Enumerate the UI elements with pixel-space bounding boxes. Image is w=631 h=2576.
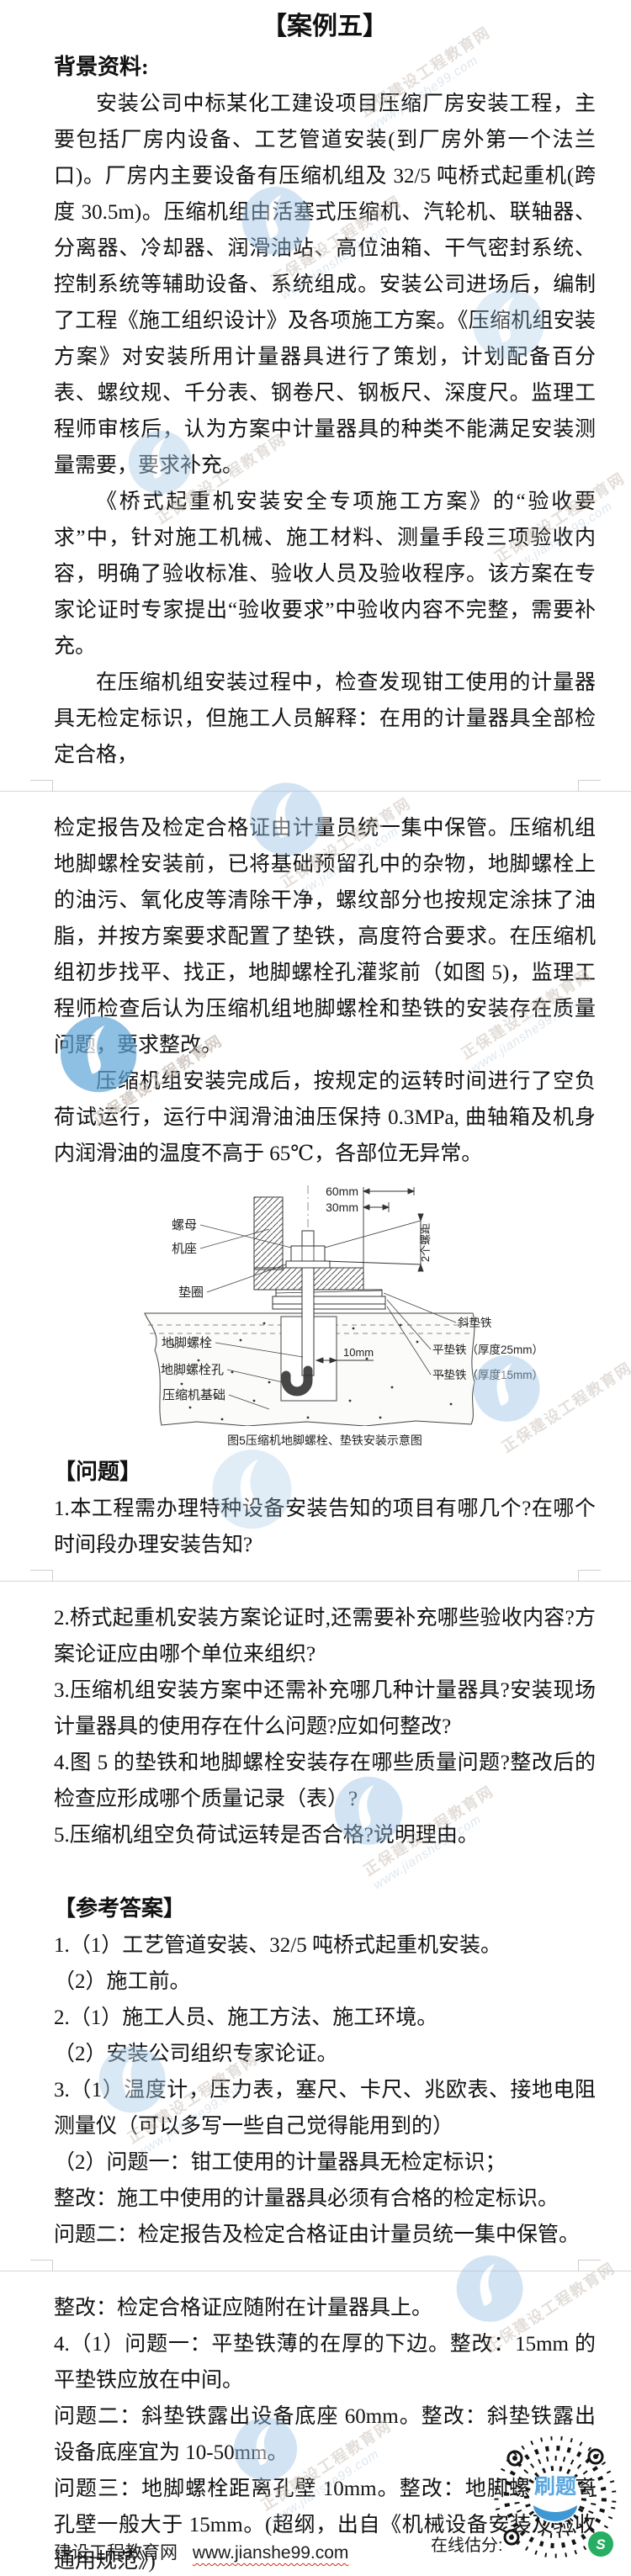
figure-caption: 图5压缩机地脚螺栓、垫铁安装示意图: [54, 1432, 596, 1449]
page-content: 【案例五】 背景资料: 安装公司中标某化工建设项目压缩厂房安装工程，主要包括厂房…: [0, 5, 631, 2576]
label-nut: 螺母: [171, 1218, 196, 1232]
label-base: 机座: [171, 1242, 196, 1256]
footer: 建设工程教育网 www.jianshe99.com: [54, 2539, 348, 2564]
answer-line: 整改：检定合格证应随附在计量器具上。: [54, 2290, 596, 2326]
qr-code-graphic: 刷题 S: [491, 2436, 626, 2571]
background-paragraph-3a: 在压缩机组安装过程中，检查发现钳工使用的计量器具无检定标识，但施工人员解释：在用…: [54, 665, 596, 773]
footer-site-url: www.jianshe99.com: [193, 2543, 349, 2563]
page-corner-right: [578, 780, 601, 792]
dim-10mm-label: 10mm: [343, 1346, 374, 1359]
answer-line: 2.（1）施工人员、施工方法、施工环境。: [54, 2000, 596, 2036]
background-paragraph-1: 安装公司中标某化工建设项目压缩厂房安装工程，主要包括厂房内设备、工艺管道安装(到…: [54, 86, 596, 484]
page-corner-left: [30, 1570, 53, 1582]
label-anchor-bolt: 地脚螺栓: [161, 1336, 211, 1350]
thread-pitch-dimension: [325, 1214, 423, 1271]
page-corner-right: [578, 2260, 601, 2271]
section-heading-answers: 【参考答案】: [54, 1890, 596, 1927]
question-3: 3.压缩机组安装方案中还需补充哪几种计量器具?安装现场计量器具的使用存在什么问题…: [54, 1672, 596, 1745]
page-break-3: [0, 2256, 631, 2287]
section-heading-background: 背景资料:: [54, 49, 596, 86]
dim-60mm-label: 60mm: [326, 1185, 358, 1198]
background-paragraph-3b: 检定报告及检定合格证由计量员统一集中保管。压缩机组地脚螺栓安装前，已将基础预留孔…: [54, 810, 596, 1063]
answer-line: （2）问题一：钳工使用的计量器具无检定标识；: [54, 2144, 596, 2181]
answer-line: 4.（1）问题一：平垫铁薄的在厚的下边。整改：15mm 的平垫铁应放在中间。: [54, 2326, 596, 2398]
answer-line: 整改：施工中使用的计量器具必须有合格的检定标识。: [54, 2181, 596, 2217]
thread-pitch-label: 2个螺距: [419, 1223, 432, 1262]
wechat-icon: S: [588, 2531, 613, 2557]
page-corner-right: [578, 1570, 601, 1582]
label-inclined-shim: 斜垫铁: [458, 1317, 492, 1329]
svg-text:S: S: [596, 2536, 606, 2552]
page-break-line: [0, 791, 631, 792]
brush-question-text: 刷题: [534, 2475, 576, 2499]
shim-stack: [273, 1290, 385, 1309]
answer-line: （2）安装公司组织专家论证。: [54, 2036, 596, 2072]
figure5: 60mm 30mm 2个螺距 10mm: [54, 1180, 596, 1449]
label-bolt-hole: 地脚螺栓孔: [160, 1363, 223, 1377]
figure-left-labels: 螺母 机座 垫圈 地脚螺栓 地脚螺栓孔 压缩机基础: [160, 1218, 225, 1402]
background-paragraph-2: 《桥式起重机安装安全专项施工方案》的“验收要求”中，针对施工机械、施工材料、测量…: [54, 484, 596, 665]
nut-drawing: [291, 1246, 325, 1261]
qr-code: 刷题 S: [491, 2436, 626, 2571]
background-paragraph-4: 压缩机组安装完成后，按规定的运转时间进行了空负荷试运行，运行中润滑油油压保持 0…: [54, 1063, 596, 1172]
case-title: 【案例五】: [54, 5, 596, 42]
washer-drawing: [286, 1261, 330, 1268]
question-2: 2.桥式起重机安装方案论证时,还需要补充哪些验收内容?方案论证应由哪个单位来组织…: [54, 1600, 596, 1672]
label-washer: 垫圈: [178, 1285, 203, 1300]
answer-line: 问题二：检定报告及检定合格证由计量员统一集中保管。: [54, 2217, 596, 2253]
dim-30mm-label: 30mm: [326, 1201, 358, 1214]
dimension-lines-top: [363, 1187, 414, 1268]
answer-line: 1.（1）工艺管道安装、32/5 吨桥式起重机安装。: [54, 1927, 596, 1964]
page-break-line: [0, 1581, 631, 1582]
page-corner-left: [30, 780, 53, 792]
page-break-2: [0, 1566, 631, 1597]
page-break-line: [0, 2271, 631, 2271]
label-foundation: 压缩机基础: [162, 1388, 225, 1402]
section-heading-questions: 【问题】: [54, 1454, 596, 1491]
footer-site-name: 建设工程教育网: [54, 2543, 178, 2563]
page-break-1: [0, 777, 631, 807]
question-1: 1.本工程需办理特种设备安装告知的项目有哪几个?在哪个时间段办理安装告知?: [54, 1491, 596, 1563]
document-page: 【案例五】 背景资料: 安装公司中标某化工建设项目压缩厂房安装工程，主要包括厂房…: [0, 0, 631, 2576]
label-flat-shim-25: 平垫铁（厚度25mm）: [432, 1344, 544, 1356]
answer-line: 3.（1）温度计，压力表，塞尺、卡尺、兆欧表、接地电阻测量仪（可以多写一些自己觉…: [54, 2072, 596, 2144]
machine-base-column: [254, 1197, 283, 1269]
question-5: 5.压缩机组空负荷试运转是否合格?说明理由。: [54, 1817, 596, 1853]
spacer: [54, 1853, 596, 1887]
question-4: 4.图 5 的垫铁和地脚螺栓安装存在哪些质量问题?整改后的检查应形成哪个质量记录…: [54, 1745, 596, 1817]
page-corner-left: [30, 2260, 53, 2271]
label-flat-shim-15: 平垫铁（厚度15mm）: [432, 1369, 544, 1381]
figure5-diagram: 60mm 30mm 2个螺距 10mm: [96, 1180, 554, 1426]
answer-line: （2）施工前。: [54, 1964, 596, 2000]
